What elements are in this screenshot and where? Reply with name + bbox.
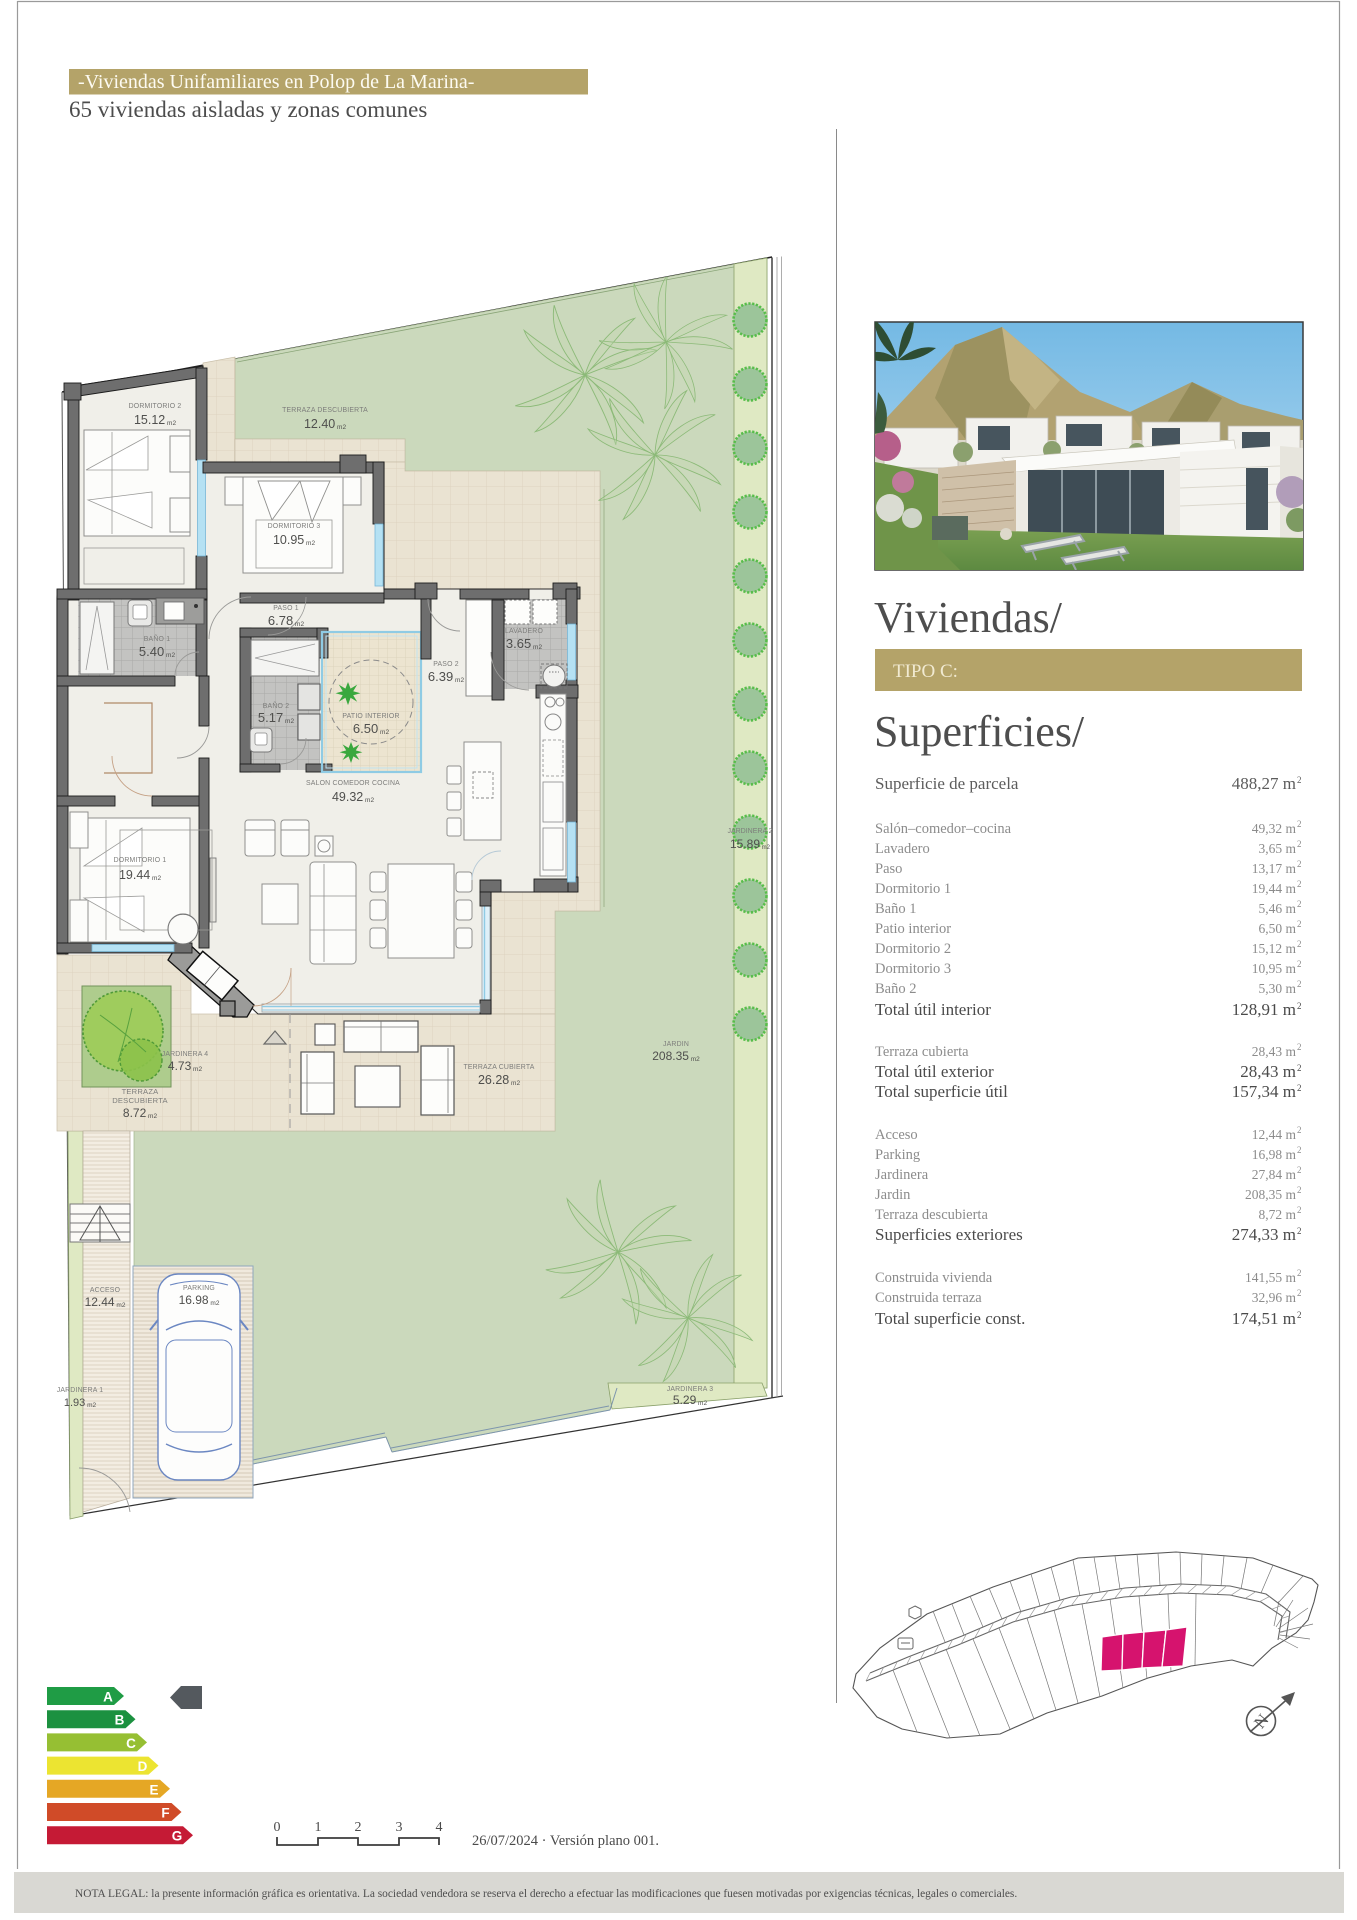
svg-text:2: 2	[1297, 959, 1302, 969]
svg-text:DORMITORIO 1: DORMITORIO 1	[114, 857, 167, 864]
svg-text:Terraza cubierta: Terraza cubierta	[875, 1044, 969, 1060]
svg-text:F: F	[161, 1806, 169, 1821]
svg-text:2: 2	[1297, 1268, 1302, 1278]
svg-text:274,33 m: 274,33 m	[1232, 1225, 1296, 1244]
svg-text:Terraza descubierta: Terraza descubierta	[875, 1207, 988, 1223]
svg-text:27,84 m: 27,84 m	[1252, 1167, 1297, 1182]
svg-text:28,43 m: 28,43 m	[1240, 1062, 1296, 1081]
svg-text:2: 2	[1297, 919, 1302, 929]
svg-text:2: 2	[1297, 939, 1302, 949]
svg-text:TERRAZA: TERRAZA	[122, 1087, 160, 1096]
svg-text:PASO 2: PASO 2	[433, 661, 459, 668]
svg-text:2: 2	[1297, 1165, 1302, 1175]
svg-text:D: D	[138, 1759, 148, 1774]
svg-text:2: 2	[1297, 1001, 1302, 1011]
svg-text:Baño 2: Baño 2	[875, 981, 916, 997]
svg-text:26/07/2024 · Versión plano 001: 26/07/2024 · Versión plano 001.	[472, 1833, 659, 1849]
svg-text:Superficies exteriores: Superficies exteriores	[875, 1225, 1023, 1244]
svg-text:LAVADERO: LAVADERO	[505, 628, 544, 635]
svg-text:3,65 m: 3,65 m	[1258, 841, 1296, 856]
svg-text:141,55 m: 141,55 m	[1245, 1270, 1297, 1285]
svg-text:5,46 m: 5,46 m	[1258, 901, 1296, 916]
svg-text:2: 2	[1297, 1125, 1302, 1135]
svg-text:157,34 m: 157,34 m	[1232, 1082, 1296, 1101]
svg-text:BAÑO 1: BAÑO 1	[144, 634, 170, 643]
svg-text:Superficies/: Superficies/	[874, 707, 1085, 756]
svg-text:Lavadero: Lavadero	[875, 841, 930, 857]
svg-text:Construida terraza: Construida terraza	[875, 1290, 982, 1306]
svg-text:0: 0	[274, 1820, 281, 1835]
svg-text:Parking: Parking	[875, 1147, 920, 1163]
svg-text:TERRAZA DESCUBIERTA: TERRAZA DESCUBIERTA	[282, 407, 368, 414]
svg-text:2: 2	[1297, 1083, 1302, 1093]
svg-text:JARDINERA 2: JARDINERA 2	[727, 828, 772, 835]
svg-text:2: 2	[1297, 859, 1302, 869]
svg-text:13,17 m: 13,17 m	[1252, 861, 1297, 876]
svg-text:ACCESO: ACCESO	[90, 1287, 121, 1294]
svg-text:2: 2	[1297, 839, 1302, 849]
svg-text:B: B	[115, 1713, 125, 1728]
svg-text:8,72 m: 8,72 m	[1258, 1207, 1296, 1222]
svg-text:5,30 m: 5,30 m	[1258, 981, 1296, 996]
svg-text:Jardinera: Jardinera	[875, 1167, 929, 1183]
svg-text:TERRAZA CUBIERTA: TERRAZA CUBIERTA	[463, 1064, 534, 1071]
svg-text:2: 2	[1297, 1226, 1302, 1236]
svg-text:Total superficie útil: Total superficie útil	[875, 1082, 1008, 1101]
svg-text:DORMITORIO 2: DORMITORIO 2	[129, 403, 182, 410]
svg-text:SALON COMEDOR COCINA: SALON COMEDOR COCINA	[306, 780, 400, 787]
svg-text:Dormitorio 2: Dormitorio 2	[875, 941, 951, 957]
svg-text:DORMITORIO 3: DORMITORIO 3	[268, 523, 321, 530]
svg-text:Dormitorio 1: Dormitorio 1	[875, 881, 951, 897]
svg-text:2: 2	[355, 1820, 362, 1835]
svg-text:Viviendas/: Viviendas/	[874, 593, 1063, 642]
svg-text:Salón–comedor–cocina: Salón–comedor–cocina	[875, 821, 1012, 837]
svg-text:JARDIN: JARDIN	[663, 1041, 689, 1048]
svg-text:2: 2	[1297, 979, 1302, 989]
svg-text:3: 3	[396, 1820, 403, 1835]
svg-text:12,44 m: 12,44 m	[1252, 1127, 1297, 1142]
svg-text:JARDINERA 3: JARDINERA 3	[667, 1386, 714, 1393]
svg-text:PASO 1: PASO 1	[273, 605, 299, 612]
svg-text:6,50 m: 6,50 m	[1258, 921, 1296, 936]
svg-text:2: 2	[1297, 1205, 1302, 1215]
svg-text:28,43 m: 28,43 m	[1252, 1044, 1297, 1059]
svg-text:488,27 m: 488,27 m	[1232, 774, 1296, 793]
svg-text:2: 2	[1297, 819, 1302, 829]
svg-text:Construida vivienda: Construida vivienda	[875, 1270, 993, 1286]
svg-text:Dormitorio 3: Dormitorio 3	[875, 961, 951, 977]
svg-text:Superficie de parcela: Superficie de parcela	[875, 774, 1019, 793]
svg-text:2: 2	[1297, 775, 1302, 785]
svg-text:Jardin: Jardin	[875, 1187, 911, 1203]
svg-text:65 viviendas aisladas y zonas: 65 viviendas aisladas y zonas comunes	[69, 97, 427, 122]
svg-text:2: 2	[1297, 1063, 1302, 1073]
svg-text:208,35 m: 208,35 m	[1245, 1187, 1297, 1202]
svg-text:A: A	[103, 1690, 113, 1705]
svg-text:4: 4	[436, 1820, 443, 1835]
svg-text:128,91 m: 128,91 m	[1232, 1000, 1296, 1019]
svg-text:PATIO INTERIOR: PATIO INTERIOR	[342, 713, 399, 720]
svg-text:2: 2	[1297, 1185, 1302, 1195]
svg-text:Patio interior: Patio interior	[875, 921, 951, 937]
svg-text:JARDINERA 4: JARDINERA 4	[162, 1051, 209, 1058]
svg-text:1: 1	[315, 1820, 322, 1835]
svg-text:2: 2	[1297, 1042, 1302, 1052]
svg-text:10,95 m: 10,95 m	[1252, 961, 1297, 976]
svg-text:Baño 1: Baño 1	[875, 901, 916, 917]
svg-text:E: E	[149, 1782, 158, 1797]
svg-text:Total útil exterior: Total útil exterior	[875, 1062, 994, 1081]
svg-text:16,98 m: 16,98 m	[1252, 1147, 1297, 1162]
svg-text:32,96 m: 32,96 m	[1252, 1290, 1297, 1305]
svg-text:19,44 m: 19,44 m	[1252, 881, 1297, 896]
svg-text:BAÑO 2: BAÑO 2	[263, 701, 289, 710]
svg-text:PARKING: PARKING	[183, 1285, 215, 1292]
svg-text:2: 2	[1297, 1310, 1302, 1320]
svg-text:Acceso: Acceso	[875, 1127, 918, 1143]
svg-text:Paso: Paso	[875, 861, 902, 877]
svg-text:2: 2	[1297, 899, 1302, 909]
svg-text:Total superficie const.: Total superficie const.	[875, 1309, 1025, 1328]
svg-text:2: 2	[1297, 879, 1302, 889]
svg-text:G: G	[172, 1829, 183, 1844]
svg-text:-Viviendas Unifamiliares en Po: -Viviendas Unifamiliares en Polop de La …	[78, 71, 474, 93]
svg-text:174,51 m: 174,51 m	[1232, 1309, 1296, 1328]
svg-text:2: 2	[1297, 1288, 1302, 1298]
svg-text:15,12 m: 15,12 m	[1252, 941, 1297, 956]
svg-text:TIPO C:: TIPO C:	[893, 661, 958, 682]
svg-text:JARDINERA 1: JARDINERA 1	[57, 1387, 104, 1394]
svg-text:2: 2	[1297, 1145, 1302, 1155]
svg-text:49,32 m: 49,32 m	[1252, 821, 1297, 836]
svg-text:DESCUBIERTA: DESCUBIERTA	[112, 1096, 168, 1105]
svg-text:NOTA LEGAL: la presente inform: NOTA LEGAL: la presente información gráf…	[75, 1888, 1017, 1900]
svg-text:C: C	[126, 1736, 136, 1751]
svg-text:Total útil interior: Total útil interior	[875, 1000, 991, 1019]
